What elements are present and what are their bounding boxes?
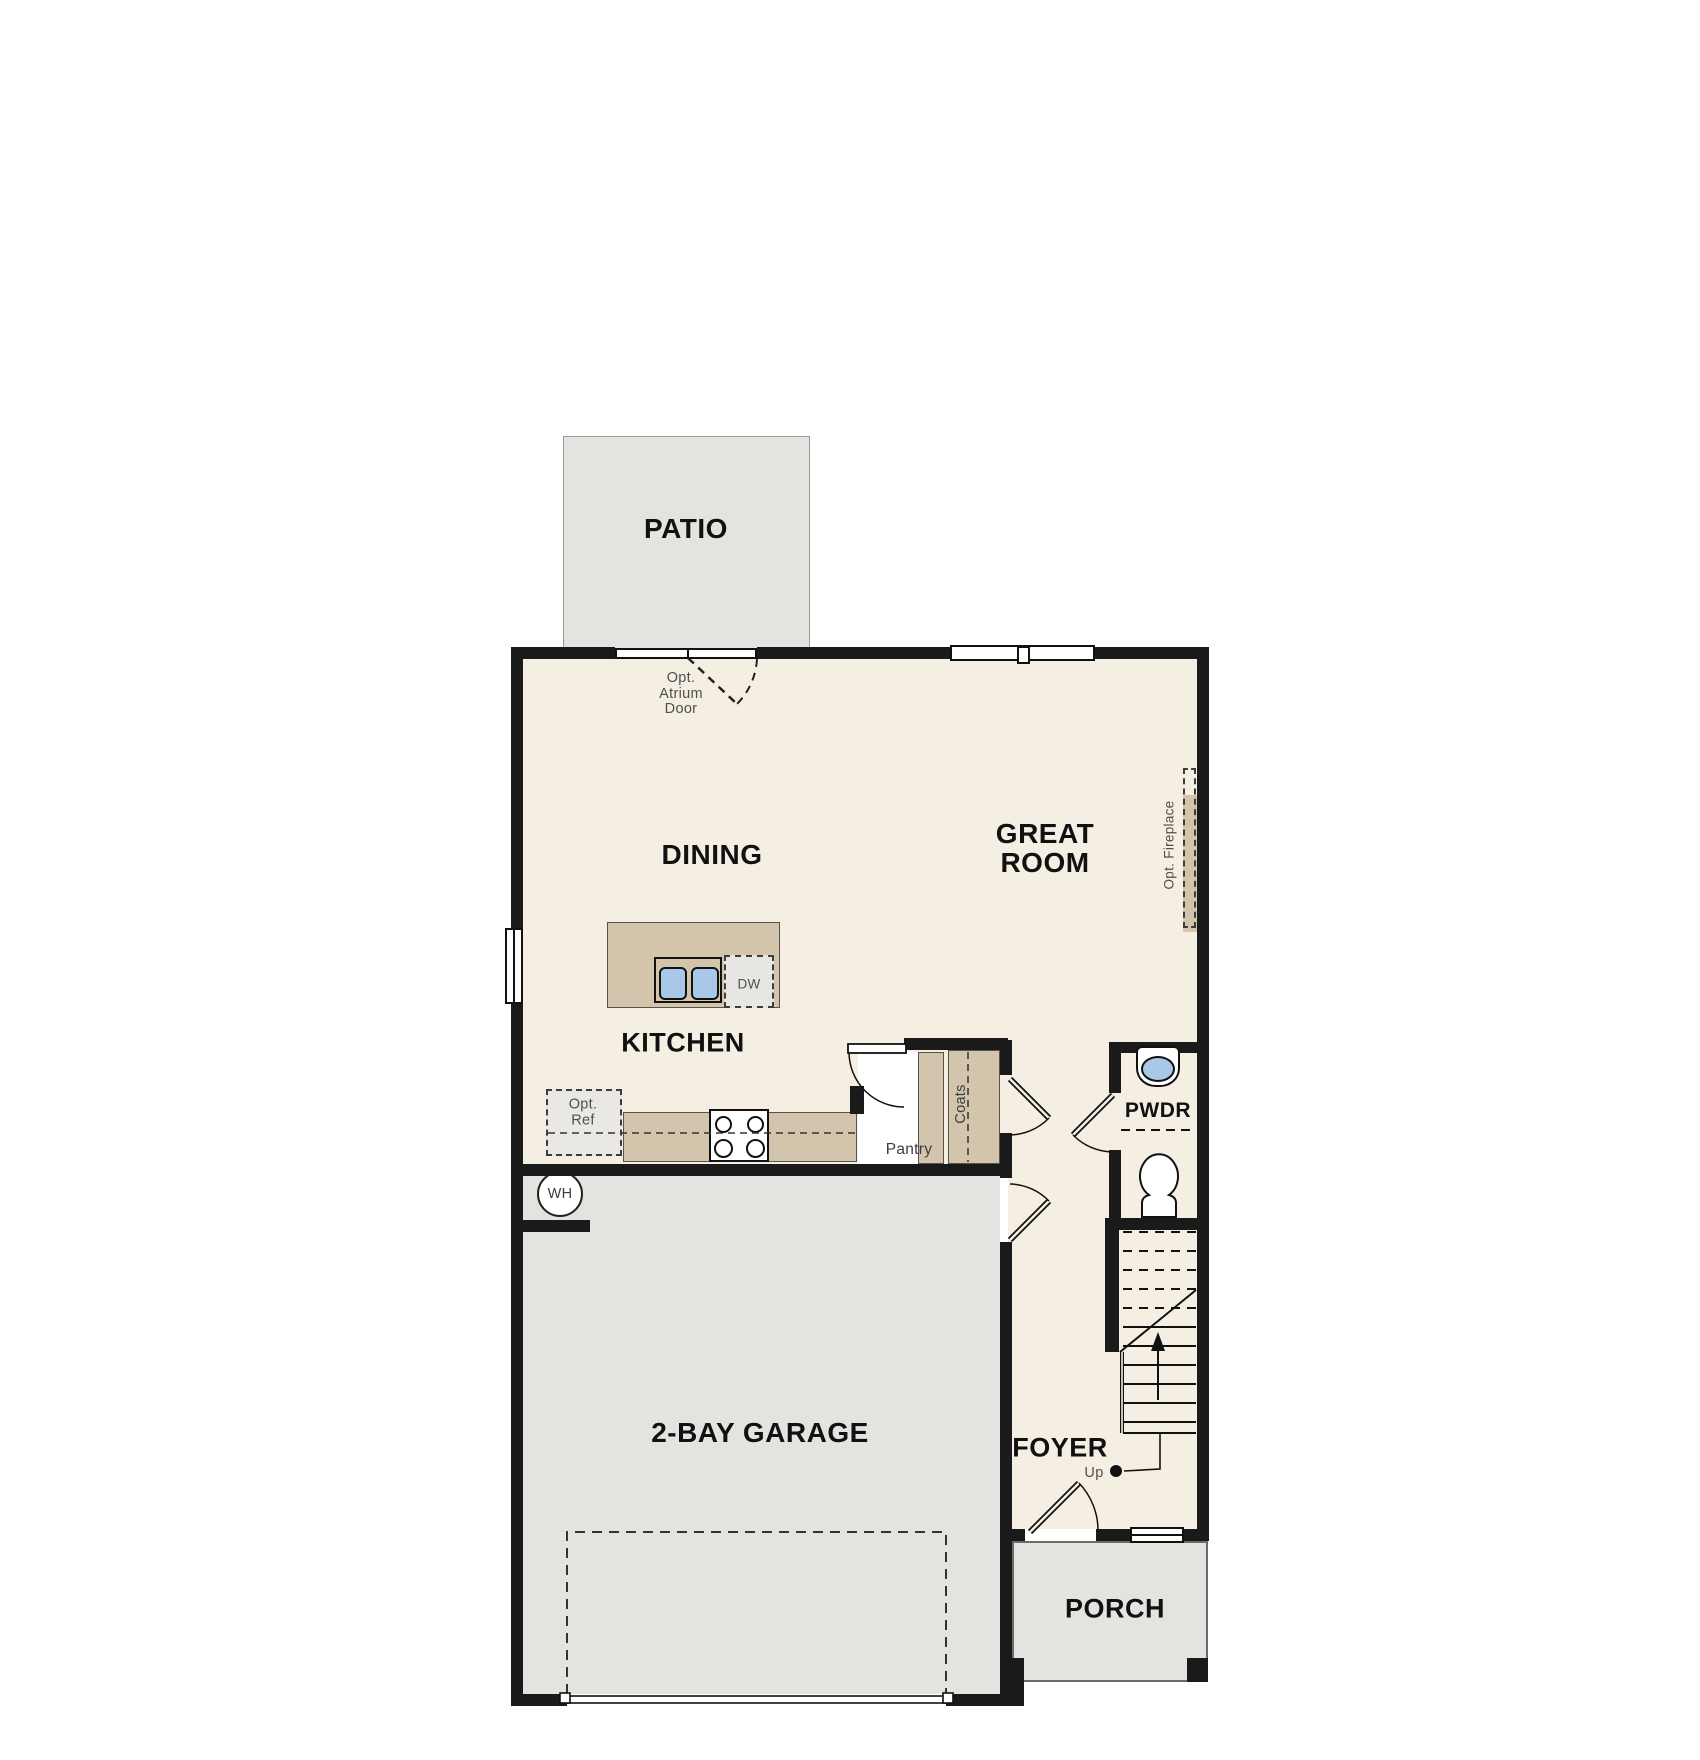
dining-label: DINING <box>662 839 763 871</box>
front-door-arc <box>1079 1483 1098 1532</box>
powder-door-arc <box>1073 1135 1113 1152</box>
garage-door-jamb <box>560 1693 570 1703</box>
dishwasher-label: DW <box>737 977 760 992</box>
garage-entry-door-leaf-inner <box>1010 1201 1049 1240</box>
hall-door-arc <box>1010 1118 1049 1135</box>
pantry-door-leaf <box>848 1044 906 1053</box>
up-label: Up <box>1084 1465 1103 1481</box>
atrium-note-line2: Atrium <box>659 685 703 701</box>
stair-upper-treads <box>1123 1232 1196 1308</box>
opt-ref-line2: Ref <box>571 1112 594 1128</box>
plan-linework <box>0 0 1700 1760</box>
garage-door-panel <box>567 1696 946 1703</box>
atrium-door-arc <box>737 659 757 704</box>
opt-ref-note: Opt. Ref <box>569 1098 598 1129</box>
atrium-note-line1: Opt. <box>667 670 696 686</box>
garage-label: 2-BAY GARAGE <box>651 1417 869 1449</box>
great-room-label: GREAT ROOM <box>996 819 1094 877</box>
hall-door-leaf-inner <box>1010 1079 1049 1118</box>
pantry-label: Pantry <box>886 1141 933 1159</box>
kitchen-label: KITCHEN <box>621 1028 745 1059</box>
stair-up-arrow-head <box>1151 1332 1165 1351</box>
floor-plan: PATIO DINING GREAT ROOM KITCHEN PWDR 2-B… <box>0 0 1700 1760</box>
powder-sink <box>1136 1046 1180 1087</box>
toilet <box>1140 1154 1178 1217</box>
garage-door-clearance-dash <box>567 1532 946 1694</box>
opt-ref-line1: Opt. <box>569 1097 598 1113</box>
powder-door-leaf-inner <box>1073 1095 1113 1135</box>
garage-entry-door-arc <box>1010 1184 1049 1201</box>
foyer-label: FOYER <box>1012 1433 1108 1464</box>
powder-label: PWDR <box>1125 1099 1191 1123</box>
garage-door-jamb <box>943 1693 953 1703</box>
great-room-label-line2: ROOM <box>1000 847 1089 878</box>
coats-label: Coats <box>953 1084 969 1123</box>
atrium-door-note: Opt. Atrium Door <box>659 671 703 718</box>
pantry-door-arc <box>849 1053 904 1107</box>
fireplace-note: Opt. Fireplace <box>1162 801 1177 890</box>
patio-label: PATIO <box>644 513 728 545</box>
great-room-label-line1: GREAT <box>996 818 1094 849</box>
water-heater-label: WH <box>548 1186 573 1202</box>
stair-handrail <box>1124 1433 1160 1471</box>
stair-newel-dot <box>1110 1465 1122 1477</box>
powder-sink-basin <box>1141 1056 1175 1082</box>
front-door-leaf-inner <box>1030 1483 1079 1532</box>
atrium-note-line3: Door <box>665 701 698 717</box>
porch-label: PORCH <box>1065 1594 1165 1625</box>
